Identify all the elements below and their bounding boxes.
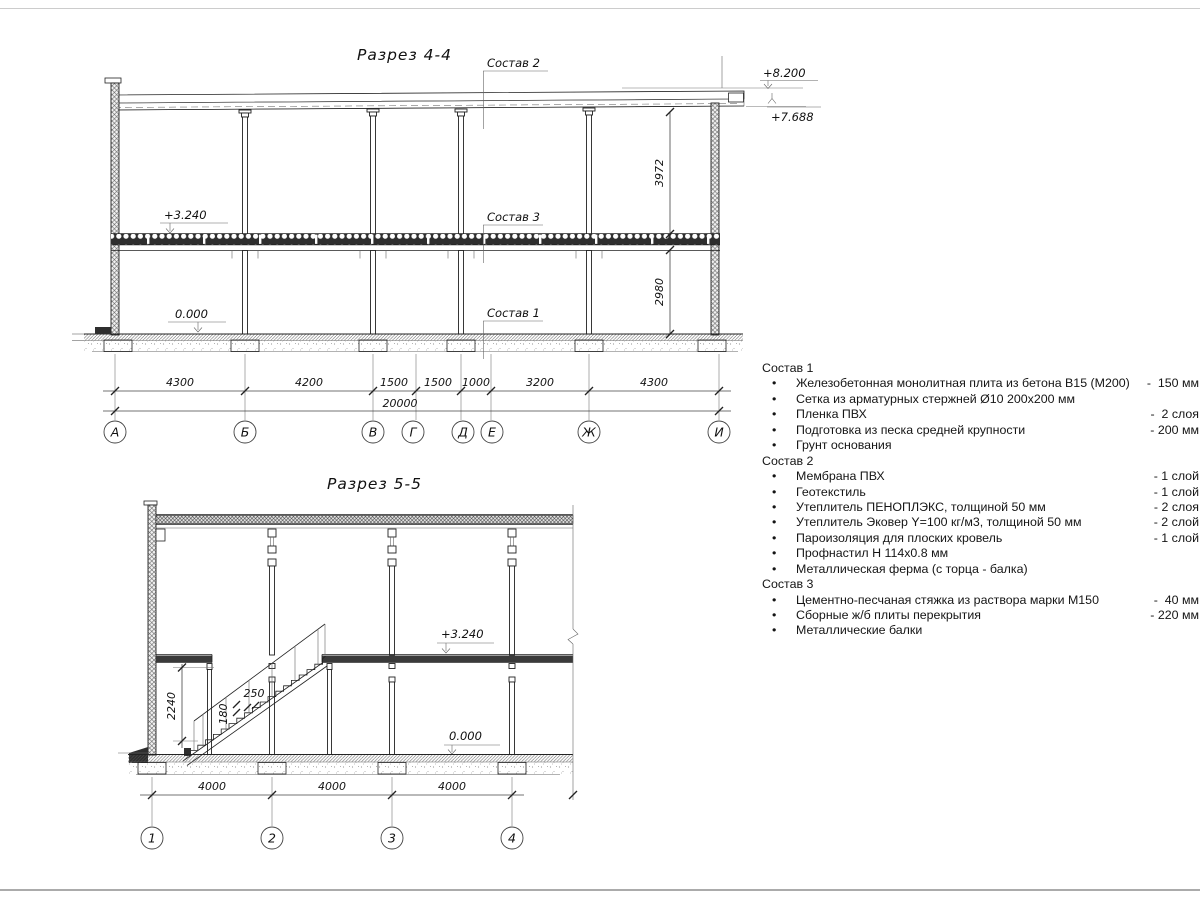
column [389, 664, 395, 755]
axis-label: Д [457, 425, 468, 440]
note-name: Профнастил Н 114х0.8 мм [762, 546, 1199, 561]
notes-item: Утеплитель Эковер Y=100 кг/м3, толщиной … [762, 515, 1199, 530]
span-dim: 4000 [438, 780, 466, 793]
tread-dim: 250 [244, 687, 265, 700]
vertical-dims-44: 3972 2980 [653, 108, 674, 338]
column [509, 664, 515, 755]
column [583, 108, 595, 234]
axis-label: Ж [581, 425, 596, 440]
notes-item: Цементно-песчаная стяжка из раствора мар… [762, 593, 1199, 608]
notes-item: Утеплитель ПЕНОПЛЭКС, толщиной 50 мм- 2 … [762, 500, 1199, 515]
notes-item: Профнастил Н 114х0.8 мм [762, 546, 1199, 561]
column [459, 251, 464, 335]
note-name: Подготовка из песка средней крупности [762, 423, 1150, 438]
slab-hollow-cores [111, 234, 720, 245]
column [508, 529, 516, 655]
note-value: - 200 мм [1150, 423, 1199, 438]
elevation-ground-label: 0.000 [175, 307, 208, 321]
lower-columns [243, 251, 592, 335]
notes-item: Железобетонная монолитная плита из бетон… [762, 376, 1199, 391]
note-value: - 2 слоя [1150, 407, 1199, 422]
beam-stubs [232, 251, 602, 259]
left-base-detail [95, 327, 111, 335]
roof-underside-line [111, 106, 744, 110]
column [388, 529, 396, 655]
right-wall [711, 103, 719, 335]
roof-fascia [729, 93, 744, 102]
note-name: Мембрана ПВХ [762, 469, 1154, 484]
note-value: - 220 мм [1150, 608, 1199, 623]
elevation-roof-eave-label: +7.688 [771, 110, 814, 124]
left-parapet-cap-55 [144, 501, 157, 505]
floor-55 [156, 655, 573, 663]
note-name: Металлическая ферма (с торца - балка) [762, 562, 1199, 577]
note-value: - 1 слой [1154, 469, 1199, 484]
drawing-sheet: Разрез 4-4 [0, 0, 1200, 900]
elevation-ground-44: 0.000 [168, 307, 226, 332]
elevation-roof-eave: +7.688 [746, 93, 821, 124]
notes-item: Подготовка из песка средней крупности- 2… [762, 423, 1199, 438]
left-parapet-cap [105, 78, 121, 83]
slab-on-grade [84, 335, 743, 341]
axis-label: Е [488, 425, 496, 440]
span-dim: 4200 [295, 376, 323, 389]
axis-label: А [110, 425, 120, 440]
axis-bubbles-44: А Б В Г Д Е Ж И [104, 421, 730, 443]
elevation-ground-55: 0.000 [444, 729, 500, 754]
axis-label: 1 [148, 831, 156, 846]
section44-title: Разрез 4-4 [357, 46, 452, 64]
notes-item: Пленка ПВХ- 2 слоя [762, 407, 1199, 422]
notes-item: Геотекстиль- 1 слой [762, 485, 1199, 500]
notes-item: Грунт основания [762, 438, 1199, 453]
span-dim: 3200 [526, 376, 554, 389]
axis-bubbles-55: 1 2 3 4 [141, 827, 523, 849]
notes-item: Сборные ж/б плиты перекрытия- 220 мм [762, 608, 1199, 623]
span-dim: 1000 [462, 376, 490, 389]
dim-chain-44: 4300 4200 1500 1500 1000 3200 4300 20000 [103, 354, 731, 420]
ground-55 [128, 755, 573, 775]
notes-item: Металлические балки [762, 623, 1199, 638]
column [371, 251, 376, 335]
sand-preparation [84, 341, 743, 352]
upper-columns [239, 108, 595, 234]
axis-label: 3 [388, 831, 396, 846]
span-dim: 4300 [640, 376, 668, 389]
note-name: Металлические балки [762, 623, 1199, 638]
span-dim: 4000 [318, 780, 346, 793]
note-value: - 1 слой [1154, 485, 1199, 500]
notes-section-title: Состав 1 [762, 361, 1199, 376]
roof-assembly [111, 91, 744, 110]
span-dim: 1500 [380, 376, 408, 389]
notes-section-title: Состав 3 [762, 577, 1199, 592]
note-value: - 150 мм [1147, 376, 1199, 391]
axis-label: 2 [268, 831, 276, 846]
note-value: - 2 слоя [1154, 500, 1199, 515]
column [455, 109, 467, 234]
dim-lower-height: 2980 [653, 278, 666, 306]
column [239, 110, 251, 234]
wall-roof-bracket [156, 529, 165, 541]
span-dim: 4300 [166, 376, 194, 389]
note-name: Утеплитель Эковер Y=100 кг/м3, толщиной … [762, 515, 1154, 530]
section-4-4: Разрез 4-4 [72, 46, 821, 443]
note-name: Сборные ж/б плиты перекрытия [762, 608, 1150, 623]
dim-upper-height: 3972 [653, 159, 666, 187]
column [243, 251, 248, 335]
axis-extension-lines [115, 354, 719, 420]
notes-item: Пароизоляция для плоских кровель- 1 слой [762, 531, 1199, 546]
materials-notes: Состав 1 Железобетонная монолитная плита… [762, 361, 1199, 639]
note-name: Железобетонная монолитная плита из бетон… [762, 376, 1147, 391]
handrail [194, 624, 325, 721]
note-name: Сетка из арматурных стержней Ø10 200х200… [762, 392, 1199, 407]
left-wall-55 [148, 505, 156, 755]
notes-item: Сетка из арматурных стержней Ø10 200х200… [762, 392, 1199, 407]
elevation-roof-top-label: +8.200 [763, 66, 806, 80]
column [587, 251, 592, 335]
axis-label: Б [241, 425, 250, 440]
axis-label: И [714, 425, 724, 440]
notes-item: Мембрана ПВХ- 1 слой [762, 469, 1199, 484]
leader-sostav2-label: Состав 2 [487, 56, 540, 70]
note-name: Пароизоляция для плоских кровель [762, 531, 1154, 546]
note-value: - 40 мм [1154, 593, 1199, 608]
total-dim: 20000 [383, 397, 418, 410]
dim-chain-55: 4000 4000 4000 [140, 777, 524, 826]
post [327, 664, 332, 755]
section-5-5: Разрез 5-5 [118, 475, 578, 849]
axis-label: Г [410, 425, 418, 440]
riser-dim: 180 [217, 704, 230, 725]
column [367, 109, 379, 234]
floor-slab [111, 234, 720, 259]
axis-label: 4 [508, 831, 516, 846]
span-dim: 1500 [424, 376, 452, 389]
left-wall [111, 83, 119, 335]
stair-height-dim: 2240 [165, 692, 178, 720]
elevation-floor-44: +3.240 [160, 208, 228, 233]
note-value: - 1 слой [1154, 531, 1199, 546]
note-name: Грунт основания [762, 438, 1199, 453]
elevation-ground-label-55: 0.000 [449, 729, 482, 743]
note-name: Геотекстиль [762, 485, 1154, 500]
elevation-roof-top: +8.200 [622, 66, 818, 89]
elevation-floor-55: +3.240 [437, 627, 494, 653]
note-name: Цементно-песчаная стяжка из раствора мар… [762, 593, 1154, 608]
notes-item: Металлическая ферма (с торца - балка) [762, 562, 1199, 577]
leader-sostav1-label: Состав 1 [487, 306, 540, 320]
note-name: Пленка ПВХ [762, 407, 1150, 422]
elevation-floor-label-55: +3.240 [441, 627, 484, 641]
note-value: - 2 слой [1154, 515, 1199, 530]
notes-section-title: Состав 2 [762, 454, 1199, 469]
column [268, 529, 276, 655]
ground-slab [72, 327, 743, 352]
axis-label: В [369, 425, 378, 440]
section55-title: Разрез 5-5 [327, 475, 422, 493]
leader-sostav3-label: Состав 3 [487, 210, 540, 224]
span-dim: 4000 [198, 780, 226, 793]
elevation-floor-label: +3.240 [164, 208, 207, 222]
note-name: Утеплитель ПЕНОПЛЭКС, толщиной 50 мм [762, 500, 1154, 515]
